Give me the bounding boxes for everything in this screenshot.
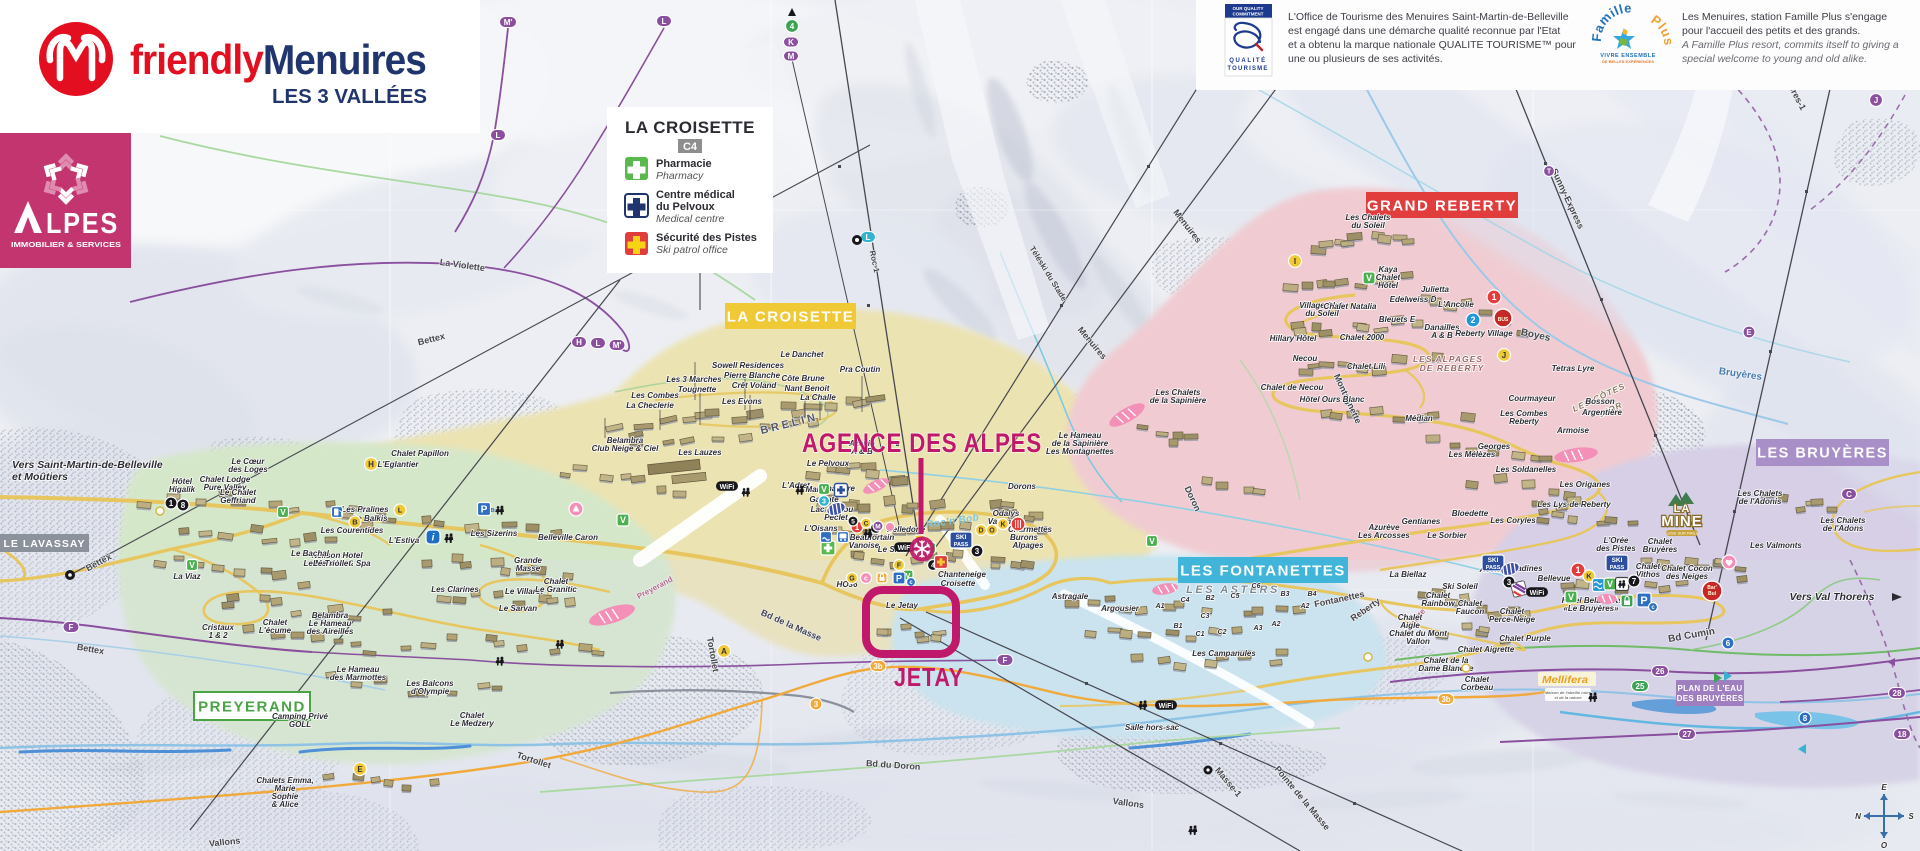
- svg-text:H: H: [576, 338, 582, 347]
- svg-text:C: C: [1846, 490, 1852, 499]
- svg-text:Chanteneige: Chanteneige: [938, 570, 987, 579]
- svg-text:Mellifera: Mellifera: [1542, 675, 1588, 686]
- svg-text:c: c: [864, 576, 868, 583]
- svg-text:I: I: [1294, 257, 1296, 266]
- svg-text:LA CROISETTE: LA CROISETTE: [727, 308, 854, 325]
- svg-text:E: E: [1746, 328, 1752, 337]
- svg-text:8: 8: [1803, 714, 1808, 723]
- svg-text:Chalet Purple: Chalet Purple: [1499, 634, 1551, 643]
- svg-text:N: N: [1855, 812, 1861, 821]
- svg-text:Chalet de Necou: Chalet de Necou: [1261, 383, 1324, 392]
- svg-text:du Soleil: du Soleil: [1351, 221, 1385, 230]
- svg-text:d'Olympie: d'Olympie: [411, 687, 450, 696]
- svg-text:Chalet Natalia: Chalet Natalia: [1324, 302, 1377, 311]
- svg-text:Le Danchet: Le Danchet: [780, 350, 823, 359]
- svg-text:Les Coryles: Les Coryles: [1490, 516, 1536, 525]
- svg-text:Julietta: Julietta: [1421, 285, 1450, 294]
- svg-text:La Checlerie: La Checlerie: [626, 401, 674, 410]
- svg-text:Necou: Necou: [1293, 354, 1318, 363]
- svg-text:Vers Val Thorens: Vers Val Thorens: [1789, 591, 1874, 603]
- svg-text:T: T: [1547, 169, 1552, 176]
- svg-text:Courmayeur: Courmayeur: [1508, 394, 1556, 403]
- svg-text:LE LAVASSAY: LE LAVASSAY: [4, 538, 86, 550]
- svg-text:Le Pelvoux: Le Pelvoux: [807, 459, 850, 468]
- svg-text:Les 3 Marches: Les 3 Marches: [666, 375, 722, 384]
- svg-text:PASS: PASS: [1486, 565, 1501, 571]
- svg-text:C: C: [864, 520, 869, 527]
- svg-text:LES 3 VALLÉES: LES 3 VALLÉES: [272, 85, 427, 108]
- svg-text:M: M: [875, 523, 880, 530]
- svg-text:Les Campanules: Les Campanules: [1192, 649, 1256, 658]
- svg-text:Belleville Caron: Belleville Caron: [538, 533, 598, 542]
- svg-text:MINE: MINE: [1661, 513, 1703, 530]
- svg-text:JETAY: JETAY: [894, 662, 964, 692]
- svg-text:K: K: [1586, 572, 1592, 581]
- svg-text:des Aireilles: des Aireilles: [307, 627, 354, 636]
- svg-text:Le Granitic: Le Granitic: [535, 585, 577, 594]
- svg-text:C4: C4: [1181, 597, 1190, 604]
- svg-text:27: 27: [1683, 730, 1692, 739]
- svg-text:Chalet Lili: Chalet Lili: [1347, 362, 1386, 371]
- svg-text:est engagé dans une démarche q: est engagé dans une démarche qualité rec…: [1288, 25, 1560, 37]
- svg-text:J: J: [1874, 96, 1878, 105]
- svg-text:A2: A2: [1300, 603, 1310, 610]
- svg-text:Pra Coutin: Pra Coutin: [840, 365, 881, 374]
- svg-text:1 & 2: 1 & 2: [208, 631, 228, 640]
- svg-text:Sécurité des Pistes: Sécurité des Pistes: [656, 232, 757, 244]
- svg-text:G: G: [849, 576, 855, 583]
- svg-text:de l'Adons: de l'Adons: [1823, 524, 1864, 533]
- svg-text:Les Evons: Les Evons: [722, 397, 763, 406]
- svg-text:Chalet Papillon: Chalet Papillon: [391, 449, 449, 458]
- svg-text:Médian: Médian: [1405, 414, 1433, 423]
- svg-text:OUR QUALITY: OUR QUALITY: [1233, 6, 1264, 11]
- svg-text:LA CROISETTE: LA CROISETTE: [625, 118, 755, 137]
- svg-text:M: M: [788, 52, 795, 61]
- svg-text:Bellevue: Bellevue: [1538, 574, 1571, 583]
- svg-text:Les Pralines: Les Pralines: [341, 505, 389, 514]
- svg-text:IMMOBILIER & SERVICES: IMMOBILIER & SERVICES: [11, 240, 121, 249]
- svg-text:Ski patrol office: Ski patrol office: [656, 244, 728, 256]
- svg-text:C5: C5: [1231, 593, 1240, 600]
- svg-text:1: 1: [1491, 292, 1496, 302]
- svg-text:4: 4: [790, 22, 795, 31]
- svg-text:P: P: [896, 573, 902, 583]
- svg-text:Chalet Aigrette: Chalet Aigrette: [1458, 645, 1515, 654]
- svg-text:Le Triollet: Le Triollet: [313, 559, 351, 568]
- svg-text:et de la nature: et de la nature: [1554, 695, 1582, 700]
- svg-text:Ski Soleil: Ski Soleil: [1442, 582, 1478, 591]
- svg-text:Faucon: Faucon: [1456, 607, 1485, 616]
- svg-text:Centre médical: Centre médical: [656, 189, 735, 201]
- svg-text:V: V: [1607, 579, 1613, 589]
- svg-text:Tougnette: Tougnette: [678, 385, 717, 394]
- svg-text:Alpages: Alpages: [1011, 541, 1044, 550]
- svg-text:GOLL: GOLL: [289, 720, 311, 729]
- svg-text:TOURISME: TOURISME: [1227, 66, 1268, 72]
- svg-text:A: A: [721, 647, 727, 656]
- svg-text:B4: B4: [1308, 591, 1317, 598]
- svg-text:Le Medzery: Le Medzery: [450, 719, 494, 728]
- svg-text:LES BRUYÈRES: LES BRUYÈRES: [1757, 445, 1888, 462]
- svg-text:L: L: [662, 17, 667, 26]
- svg-text:B2: B2: [1206, 595, 1215, 602]
- svg-text:La Viaz: La Viaz: [173, 572, 200, 581]
- svg-text:Bloedette: Bloedette: [1452, 509, 1489, 518]
- svg-text:L: L: [596, 339, 601, 348]
- svg-text:L: L: [866, 233, 871, 242]
- svg-text:Nant Benoit: Nant Benoit: [785, 384, 830, 393]
- svg-text:3b: 3b: [1441, 695, 1450, 704]
- svg-text:Georges: Georges: [1478, 442, 1511, 451]
- svg-text:Les Origanes: Les Origanes: [1560, 480, 1611, 489]
- svg-text:i: i: [432, 533, 435, 544]
- svg-text:«Le Bruyères»: «Le Bruyères»: [1563, 604, 1619, 613]
- svg-text:Les Soldanelles: Les Soldanelles: [1496, 465, 1557, 474]
- svg-text:E: E: [1881, 783, 1887, 792]
- svg-text:La Biellaz: La Biellaz: [1390, 570, 1427, 579]
- svg-text:V: V: [1366, 273, 1372, 283]
- svg-text:P: P: [1640, 595, 1647, 607]
- svg-text:Côte Brune: Côte Brune: [781, 374, 825, 383]
- svg-text:B3: B3: [1281, 591, 1290, 598]
- svg-text:K: K: [1000, 522, 1005, 529]
- svg-text:SKI: SKI: [1612, 557, 1623, 564]
- svg-text:26: 26: [1656, 667, 1665, 676]
- svg-text:Higalik: Higalik: [169, 485, 196, 494]
- svg-text:La Challe: La Challe: [800, 393, 836, 402]
- svg-text:Les Mélèzes: Les Mélèzes: [1449, 450, 1496, 459]
- svg-text:5: 5: [851, 518, 855, 525]
- svg-text:Les Lys de Reberty: Les Lys de Reberty: [1537, 500, 1611, 509]
- svg-text:H: H: [368, 460, 374, 469]
- svg-text:PLAN DE L'EAU: PLAN DE L'EAU: [1678, 684, 1743, 693]
- svg-text:des Pistes: des Pistes: [1596, 544, 1636, 553]
- svg-text:Hillary Hôtel: Hillary Hôtel: [1270, 334, 1317, 343]
- svg-text:Edelweiss D: Edelweiss D: [1390, 295, 1437, 304]
- svg-text:3: 3: [822, 499, 826, 506]
- svg-text:Argousier: Argousier: [1100, 604, 1140, 613]
- svg-text:Gentianes: Gentianes: [1402, 517, 1441, 526]
- svg-text:WiFi: WiFi: [1159, 703, 1174, 710]
- svg-text:COMMITMENT: COMMITMENT: [1233, 12, 1264, 17]
- svg-text:A & B: A & B: [1430, 331, 1453, 340]
- svg-text:F: F: [897, 563, 902, 570]
- svg-text:C2: C2: [1218, 629, 1227, 636]
- svg-text:Vers Saint-Martin-de-Bellevill: Vers Saint-Martin-de-Belleville: [12, 459, 163, 471]
- svg-text:V: V: [620, 515, 626, 525]
- svg-text:3: 3: [814, 700, 819, 709]
- svg-text:C3: C3: [1201, 613, 1210, 620]
- svg-text:Les Combes: Les Combes: [631, 391, 679, 400]
- svg-text:Vanoise: Vanoise: [849, 541, 880, 550]
- svg-text:Le Jetay: Le Jetay: [886, 601, 919, 610]
- svg-text:PASS: PASS: [954, 542, 969, 548]
- svg-text:C4: C4: [683, 141, 698, 153]
- svg-text:BUS: BUS: [1498, 317, 1509, 323]
- svg-text:Masse: Masse: [516, 564, 541, 573]
- svg-text:18: 18: [1898, 730, 1907, 739]
- svg-text:Sowell Residences: Sowell Residences: [712, 361, 785, 370]
- svg-text:QUALITÉ: QUALITÉ: [1229, 56, 1267, 64]
- svg-text:LPES: LPES: [46, 208, 119, 240]
- svg-text:Tetras Lyre: Tetras Lyre: [1552, 364, 1595, 373]
- svg-text:Pharmacy: Pharmacy: [656, 170, 704, 182]
- svg-text:du Pelvoux: du Pelvoux: [656, 201, 716, 213]
- svg-text:Bosson: Bosson: [1585, 397, 1614, 406]
- svg-text:Les Arcosses: Les Arcosses: [1358, 531, 1410, 540]
- svg-text:8: 8: [181, 501, 186, 510]
- svg-text:Hôtel Ours Blanc: Hôtel Ours Blanc: [1300, 395, 1365, 404]
- svg-text:L: L: [398, 506, 403, 515]
- svg-text:WiFi: WiFi: [1530, 590, 1545, 597]
- svg-text:Les Montagnettes: Les Montagnettes: [1046, 447, 1115, 456]
- svg-text:1: 1: [1575, 565, 1580, 575]
- svg-text:V: V: [189, 561, 195, 570]
- svg-text:3b: 3b: [873, 662, 882, 671]
- svg-text:1: 1: [169, 499, 174, 508]
- svg-text:Pierre Blanche: Pierre Blanche: [724, 371, 781, 380]
- svg-text:et a obtenu la marque national: et a obtenu la marque nationale QUALITE …: [1288, 39, 1576, 51]
- svg-text:Perce-Neige: Perce-Neige: [1489, 615, 1536, 624]
- svg-text:DES BRUYÈRES: DES BRUYÈRES: [1677, 694, 1744, 703]
- svg-text:3: 3: [975, 547, 980, 556]
- svg-text:des Loges: des Loges: [228, 465, 268, 474]
- svg-text:& Alice: & Alice: [272, 800, 299, 809]
- svg-text:Salle hors-sac: Salle hors-sac: [1125, 723, 1180, 732]
- svg-text:F: F: [1003, 656, 1008, 665]
- svg-text:Reberty Village: Reberty Village: [1455, 329, 1513, 338]
- svg-text:Vallon: Vallon: [1406, 637, 1430, 646]
- svg-text:2: 2: [1470, 315, 1475, 325]
- svg-text:Les Lauzes: Les Lauzes: [678, 448, 722, 457]
- svg-text:V: V: [821, 485, 827, 494]
- svg-text:B1: B1: [1174, 623, 1183, 630]
- svg-text:PASS: PASS: [1610, 565, 1625, 571]
- svg-text:Les Valmonts: Les Valmonts: [1750, 541, 1802, 550]
- svg-text:S: S: [1908, 812, 1914, 821]
- svg-text:25: 25: [1636, 682, 1645, 691]
- svg-text:L'Eglantier: L'Eglantier: [377, 460, 419, 469]
- svg-text:LUGE SUR RAILS: LUGE SUR RAILS: [1665, 531, 1698, 536]
- svg-text:C1: C1: [1196, 631, 1205, 638]
- svg-text:28: 28: [1893, 689, 1902, 698]
- svg-text:WiFi: WiFi: [720, 484, 735, 491]
- svg-text:Rainbow: Rainbow: [1421, 599, 1455, 608]
- svg-text:Dorons: Dorons: [1008, 482, 1037, 491]
- svg-text:6: 6: [1726, 639, 1731, 648]
- svg-text:Croisette: Croisette: [941, 579, 976, 588]
- svg-text:Corbeau: Corbeau: [1461, 683, 1494, 692]
- svg-text:Medical centre: Medical centre: [656, 213, 724, 225]
- svg-text:Le Bachal: Le Bachal: [291, 549, 330, 558]
- svg-text:O: O: [1881, 841, 1888, 850]
- svg-text:B: B: [352, 518, 358, 527]
- svg-text:Hôtel: Hôtel: [1378, 281, 1399, 290]
- svg-text:L'Estiva: L'Estiva: [389, 536, 420, 545]
- svg-text:Armoise: Armoise: [1556, 426, 1590, 435]
- svg-text:Bleuets E: Bleuets E: [1379, 315, 1416, 324]
- svg-text:Bul: Bul: [1708, 591, 1717, 597]
- svg-text:P: P: [481, 505, 488, 516]
- svg-text:K: K: [788, 38, 794, 47]
- svg-text:M': M': [504, 18, 513, 27]
- svg-text:V: V: [1149, 537, 1155, 546]
- svg-text:L'Office de Tourisme des Menui: L'Office de Tourisme des Menuires Saint-…: [1288, 11, 1569, 23]
- svg-text:V: V: [1568, 592, 1574, 602]
- svg-text:Pharmacie: Pharmacie: [656, 158, 712, 170]
- svg-text:special welcome to young and o: special welcome to young and old alike.: [1682, 53, 1867, 65]
- svg-text:L'Ancolie: L'Ancolie: [1438, 300, 1474, 309]
- svg-text:SKI: SKI: [1488, 557, 1499, 564]
- svg-text:A3: A3: [1253, 625, 1263, 632]
- svg-text:V: V: [280, 508, 286, 517]
- svg-text:L: L: [496, 131, 501, 140]
- svg-text:Geffriand: Geffriand: [220, 496, 257, 505]
- svg-text:J: J: [1502, 351, 1506, 360]
- svg-text:Chalet 2000: Chalet 2000: [1340, 333, 1385, 342]
- svg-text:Les Menuires, station Famille: Les Menuires, station Famille Plus s'eng…: [1682, 11, 1887, 23]
- svg-text:Crêt Voland: Crêt Voland: [732, 381, 778, 390]
- svg-text:SKI: SKI: [956, 534, 967, 541]
- svg-text:Les Sizerins: Les Sizerins: [471, 529, 518, 538]
- svg-text:de la Sapinière: de la Sapinière: [1150, 396, 1207, 405]
- svg-text:A1: A1: [1155, 603, 1165, 610]
- svg-text:DE BELLES EXPÉRIENCES: DE BELLES EXPÉRIENCES: [1602, 59, 1654, 64]
- svg-text:A Famille Plus resort, commits: A Famille Plus resort, commits itself to…: [1681, 39, 1899, 51]
- svg-text:GRAND REBERTY: GRAND REBERTY: [1367, 197, 1517, 214]
- svg-text:des Neiges: des Neiges: [1666, 572, 1709, 581]
- svg-text:Les Clarines: Les Clarines: [431, 585, 479, 594]
- svg-text:F: F: [69, 623, 74, 632]
- svg-text:DE REBERTY: DE REBERTY: [1420, 363, 1485, 373]
- svg-text:E: E: [357, 765, 363, 774]
- svg-text:A2: A2: [1271, 621, 1281, 628]
- svg-text:Reberty: Reberty: [1509, 417, 1539, 426]
- svg-text:D: D: [978, 528, 983, 535]
- svg-text:LES FONTANETTES: LES FONTANETTES: [1180, 562, 1346, 579]
- svg-text:C6: C6: [1252, 583, 1261, 590]
- svg-text:une ou plusieurs de ses activi: une ou plusieurs de ses activités.: [1288, 53, 1443, 65]
- svg-text:L'écume: L'écume: [259, 626, 292, 635]
- svg-text:Bruyères: Bruyères: [1643, 545, 1678, 554]
- svg-text:M': M': [613, 341, 622, 350]
- svg-text:Club Neige & Ciel: Club Neige & Ciel: [592, 444, 659, 453]
- svg-text:friendlyMenuires: friendlyMenuires: [130, 36, 426, 83]
- svg-text:pour l'accueil des petits et d: pour l'accueil des petits et des grands.: [1682, 25, 1860, 37]
- svg-text:Le Sorbier: Le Sorbier: [1427, 531, 1467, 540]
- svg-text:Le Sarvan: Le Sarvan: [499, 604, 537, 613]
- svg-text:et Moûtiers: et Moûtiers: [12, 471, 68, 483]
- svg-text:de l'Adonis: de l'Adonis: [1739, 497, 1782, 506]
- svg-text:O: O: [989, 528, 995, 535]
- svg-text:7: 7: [1632, 577, 1637, 586]
- svg-text:Astragale: Astragale: [1051, 592, 1089, 601]
- svg-text:AGENCE DES ALPES: AGENCE DES ALPES: [802, 428, 1042, 458]
- svg-text:des Marmottes: des Marmottes: [330, 673, 387, 682]
- svg-text:Argentière: Argentière: [1581, 408, 1623, 417]
